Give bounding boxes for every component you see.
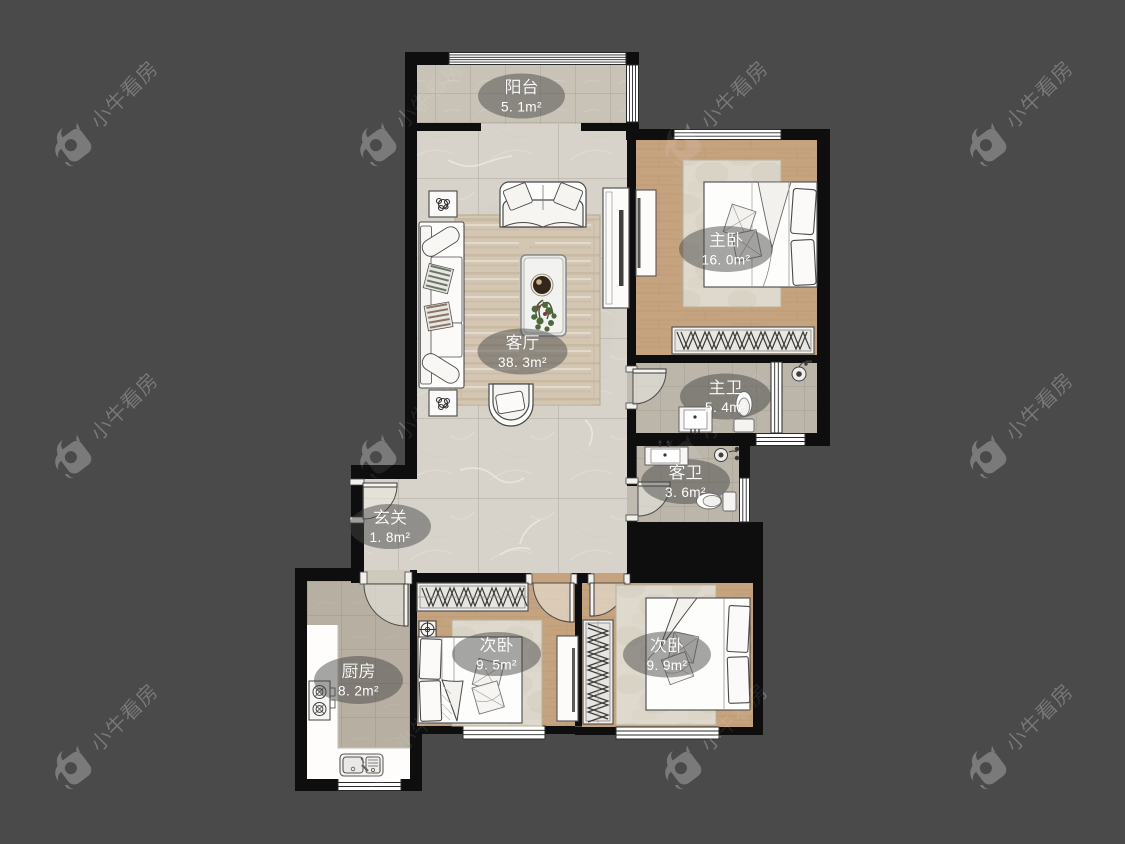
svg-text:9. 9m²: 9. 9m² — [647, 658, 688, 673]
svg-text:1. 8m²: 1. 8m² — [370, 530, 411, 545]
svg-text:9. 5m²: 9. 5m² — [476, 658, 517, 673]
svg-text:5. 4m²: 5. 4m² — [705, 400, 746, 415]
svg-text:16. 0m²: 16. 0m² — [702, 253, 751, 268]
svg-text:3. 6m²: 3. 6m² — [665, 485, 706, 500]
svg-text:5. 1m²: 5. 1m² — [501, 100, 542, 115]
svg-text:8. 2m²: 8. 2m² — [338, 684, 379, 699]
svg-text:38. 3m²: 38. 3m² — [498, 355, 547, 370]
